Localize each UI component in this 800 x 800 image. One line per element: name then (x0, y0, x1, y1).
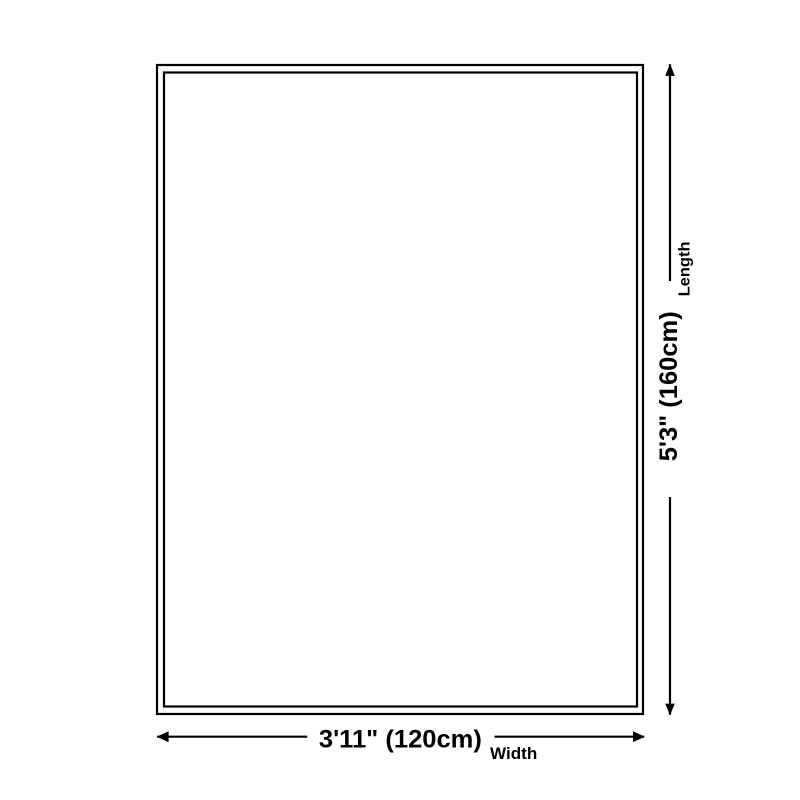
svg-text:Length: Length (676, 241, 693, 296)
svg-text:Width: Width (490, 744, 537, 763)
svg-text:5'3" (160cm): 5'3" (160cm) (655, 311, 683, 461)
svg-text:3'11" (120cm): 3'11" (120cm) (319, 725, 482, 753)
